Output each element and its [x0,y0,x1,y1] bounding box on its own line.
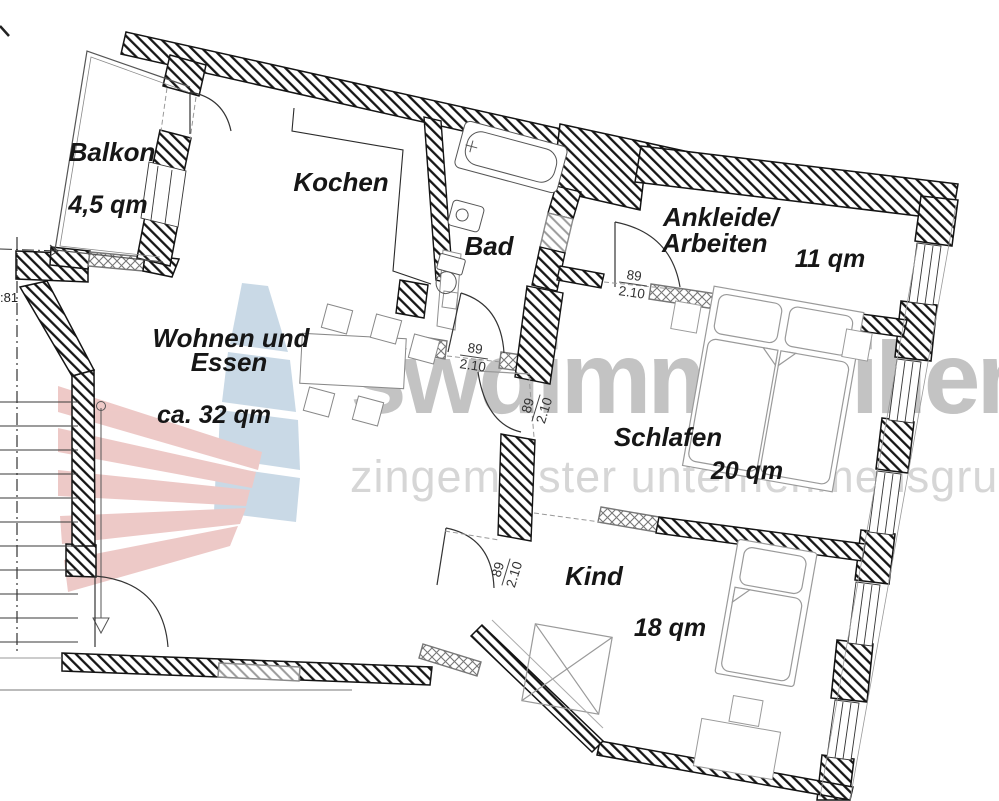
window [141,162,186,227]
room-area-wohnen: ca. 32 qm [157,401,271,429]
wall-segment-light [598,507,659,532]
door-size-annotation: 89 2.10 [617,266,649,302]
edge-tick [0,26,9,36]
room-label-bad: Bad [464,231,514,261]
wall-segment [557,266,604,288]
wall-segment [20,281,94,376]
nightstand [842,329,872,361]
room-label-ankleide-line2: Arbeiten [661,228,767,258]
wall-segment [72,370,95,546]
window [909,243,941,305]
wall-segment [396,280,428,318]
wall-segment [66,544,96,577]
door-width-label: 89 [626,267,643,284]
door-width-label: 89 [467,340,484,357]
window [848,582,880,646]
room-label-kind: Kind [565,561,624,591]
room-area-schlafen: 20 qm [710,457,783,485]
kind-door [437,528,494,588]
room-area-kind: 18 qm [634,614,706,642]
room-label-kochen: Kochen [293,167,388,197]
wall-segment [218,663,300,681]
door-height-label: 2.10 [503,560,525,590]
bathroom-sink [447,199,485,232]
floor-plan-page: swdimmobilien zingemeister unternehmensg… [0,0,999,801]
wall-segment [471,625,603,752]
wall-segment [915,196,958,246]
door-height-label: 2.10 [618,283,646,302]
room-label-wohnen-line2: Essen [191,347,268,377]
dimension-line [0,249,58,251]
wall-segment [540,213,573,253]
bay-inner-line [492,620,603,728]
room-label-schlafen: Schlafen [614,422,722,452]
single-bed [715,539,817,687]
wardrobe [522,624,612,714]
door-size-annotation: 89 2.10 [487,554,526,590]
room-label-balkon: Balkon [69,137,156,167]
desk-chair [729,696,763,727]
floor-plan: swdimmobilien zingemeister unternehmensg… [0,0,999,801]
room-area-balkon: 4,5 qm [67,191,147,219]
entrance-door [95,576,168,647]
nightstand [671,301,701,333]
wall-segment [831,640,873,702]
stair-dimension-label: :81 [0,290,18,305]
room-area-ankleide: 11 qm [795,245,865,273]
stairwell: :81 [0,26,352,690]
wall-segment [498,434,535,541]
